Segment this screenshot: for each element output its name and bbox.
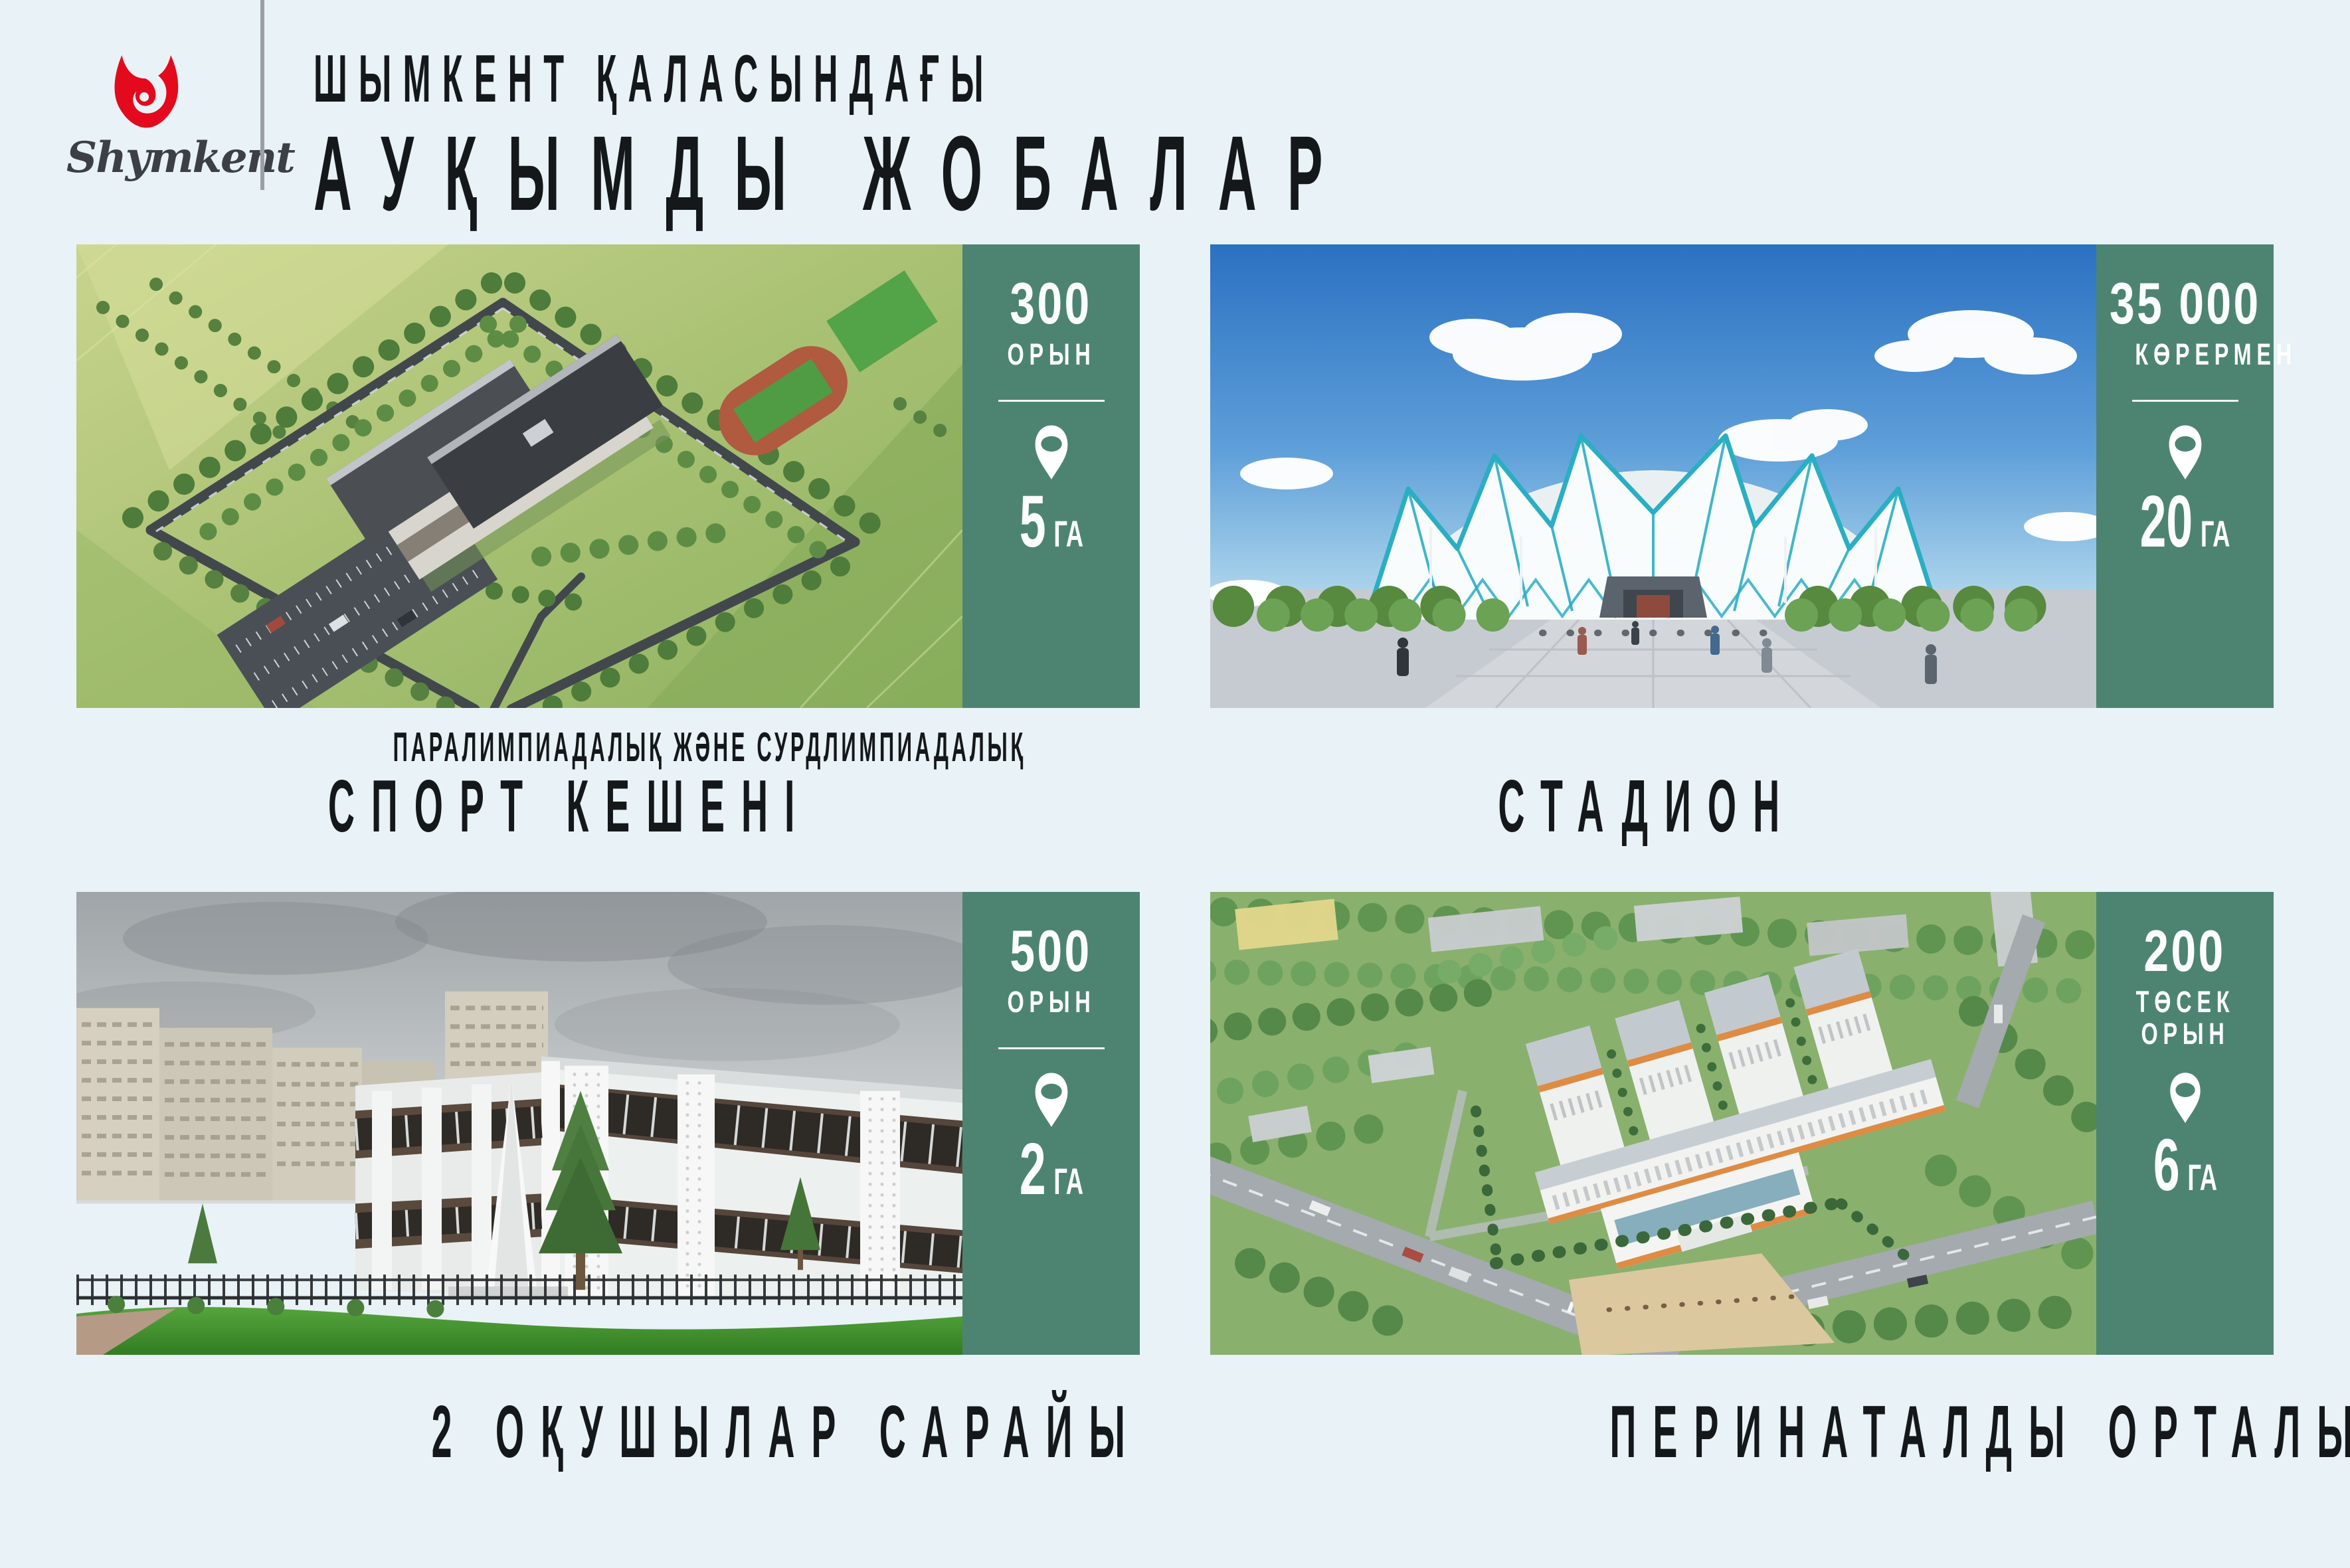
header-divider (260, 0, 264, 190)
stat-panel: 35 000 КӨРЕРМЕН 20ГА (2096, 244, 2274, 708)
lawn (76, 1307, 962, 1355)
stat-value: 300 (998, 275, 1104, 332)
stat-panel: 200 ТӨСЕК ОРЫН 6ГА (2096, 892, 2274, 1355)
shymkent-logo: Shymkent (66, 52, 225, 183)
project-card-perinatal-center: 200 ТӨСЕК ОРЫН 6ГА (1210, 892, 2274, 1355)
school-palace-photo (76, 892, 962, 1355)
sport-complex-illustration (76, 244, 962, 708)
location-pin-icon (1028, 1071, 1075, 1128)
caption-sport-complex: СПОРТ КЕШЕНІ (76, 764, 1063, 849)
area-stat: 20ГА (2116, 485, 2254, 559)
area-stat: 2ГА (1002, 1133, 1101, 1206)
stat-panel: 300 ОРЫН 5ГА (962, 244, 1140, 708)
caption-stadium: СТАДИОН (1210, 764, 2084, 849)
stat-value: 35 000 (2087, 275, 2284, 332)
stat-panel: 500 ОРЫН 2ГА (962, 892, 1140, 1355)
school-illustration (76, 892, 962, 1355)
area-stat: 5ГА (1002, 485, 1101, 559)
perinatal-center-photo (1210, 892, 2096, 1355)
location-pin-icon (1028, 423, 1075, 480)
stat-label: ОРЫН (1001, 986, 1101, 1018)
caption-school-palace: 2 ОҚУШЫЛАР САРАЙЫ (76, 1389, 1063, 1474)
project-card-school-palace: 500 ОРЫН 2ГА (76, 892, 1140, 1355)
stat-label: КӨРЕРМЕН (2135, 339, 2235, 371)
stat-label: ТӨСЕК ОРЫН (2135, 986, 2235, 1050)
slide-subtitle: ШЫМКЕНТ ҚАЛАСЫНДАҒЫ (314, 44, 2350, 115)
divider (2132, 400, 2238, 402)
location-pin-icon (2161, 423, 2209, 480)
stat-value: 500 (998, 922, 1104, 980)
sport-complex-photo (76, 244, 962, 708)
divider (998, 1047, 1105, 1049)
stat-label: ОРЫН (1001, 339, 1101, 371)
perinatal-illustration (1210, 892, 2096, 1355)
tulip-logo-icon (102, 52, 189, 133)
stat-value: 200 (2131, 922, 2238, 980)
stadium-illustration (1210, 244, 2096, 708)
slide-header: ШЫМКЕНТ ҚАЛАСЫНДАҒЫ АУҚЫМДЫ ЖОБАЛАР (314, 44, 2350, 231)
stadium-photo (1210, 244, 2096, 708)
divider (998, 400, 1105, 402)
project-card-sport-complex: 300 ОРЫН 5ГА (76, 244, 1140, 708)
area-stat: 6ГА (2136, 1129, 2234, 1202)
location-pin-icon (2163, 1071, 2207, 1124)
project-card-stadium: 35 000 КӨРЕРМЕН 20ГА (1210, 244, 2274, 708)
slide-title: АУҚЫМДЫ ЖОБАЛАР (314, 116, 2350, 231)
caption-perinatal-center: ПЕРИНАТАЛДЫ ОРТАЛЫҚ (1210, 1389, 2084, 1474)
logo-wordmark: Shymkent (66, 133, 225, 183)
main-building (355, 1057, 962, 1306)
